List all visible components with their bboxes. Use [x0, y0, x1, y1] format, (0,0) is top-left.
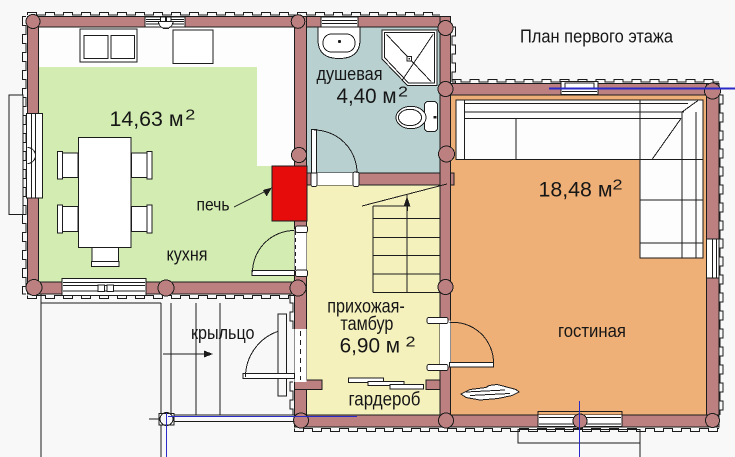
- svg-text:2: 2: [613, 177, 623, 194]
- svg-text:крыльцо: крыльцо: [191, 323, 255, 343]
- svg-text:душевая: душевая: [317, 64, 383, 84]
- svg-text:2: 2: [398, 83, 408, 100]
- svg-text:14,63 м: 14,63 м: [110, 108, 184, 131]
- svg-text:гардероб: гардероб: [349, 390, 421, 411]
- svg-text:гостиная: гостиная: [558, 320, 626, 341]
- svg-text:тамбур: тамбур: [340, 314, 393, 335]
- svg-text:6,90 м: 6,90 м: [340, 334, 401, 357]
- svg-text:кухня: кухня: [167, 244, 208, 265]
- svg-text:План первого этажа: План первого этажа: [520, 27, 674, 47]
- svg-text:4,40 м: 4,40 м: [337, 85, 397, 108]
- svg-text:2: 2: [185, 107, 195, 124]
- svg-text:печь: печь: [197, 195, 230, 215]
- svg-text:2: 2: [406, 333, 416, 350]
- svg-text:18,48 м: 18,48 м: [539, 178, 613, 202]
